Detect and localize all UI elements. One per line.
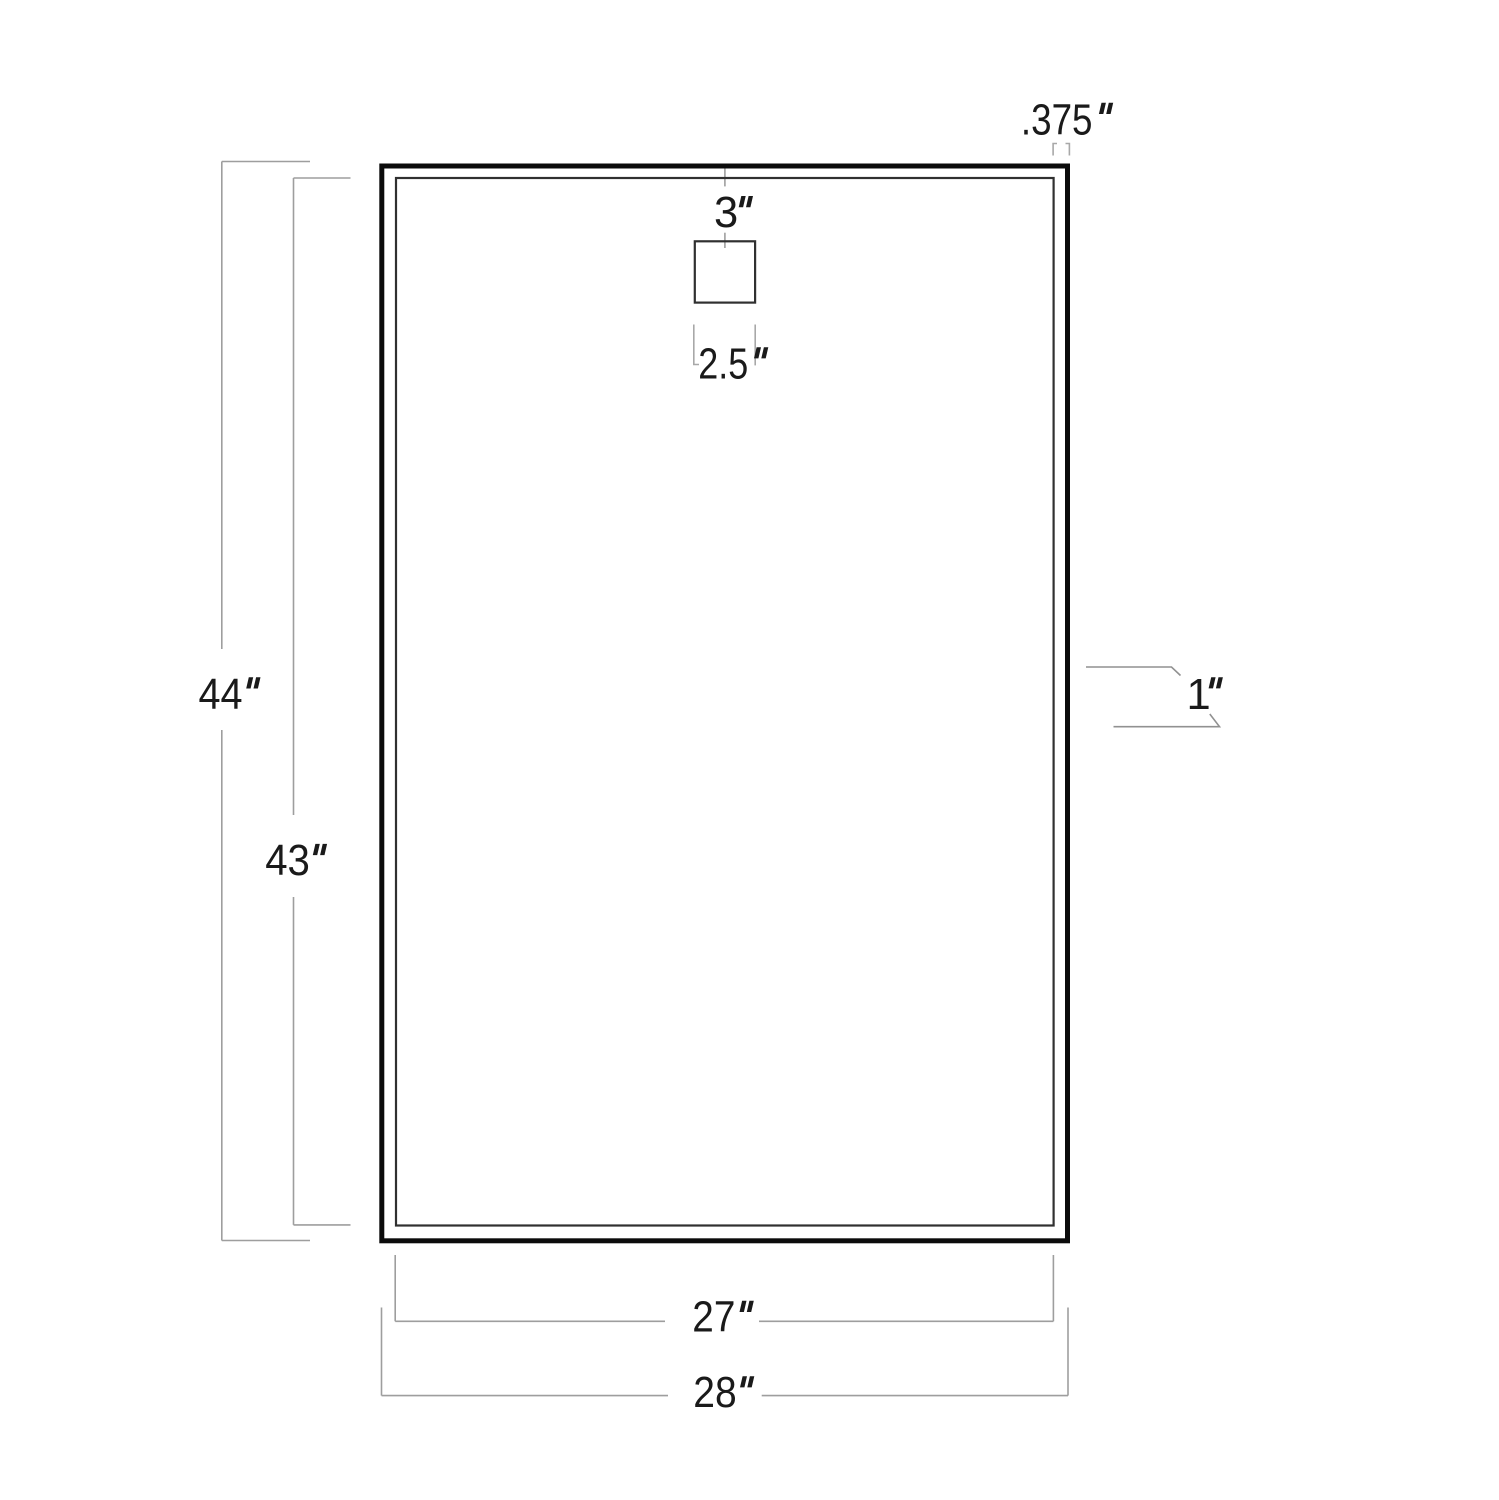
- svg-text:43: 43: [265, 837, 310, 885]
- svg-text:.375: .375: [1021, 97, 1093, 145]
- svg-text:2.5: 2.5: [698, 340, 748, 388]
- svg-text:1: 1: [1187, 671, 1211, 719]
- svg-text:3: 3: [714, 189, 738, 237]
- svg-text:44: 44: [199, 671, 243, 719]
- svg-text:27: 27: [692, 1293, 735, 1341]
- svg-text:28: 28: [693, 1369, 736, 1417]
